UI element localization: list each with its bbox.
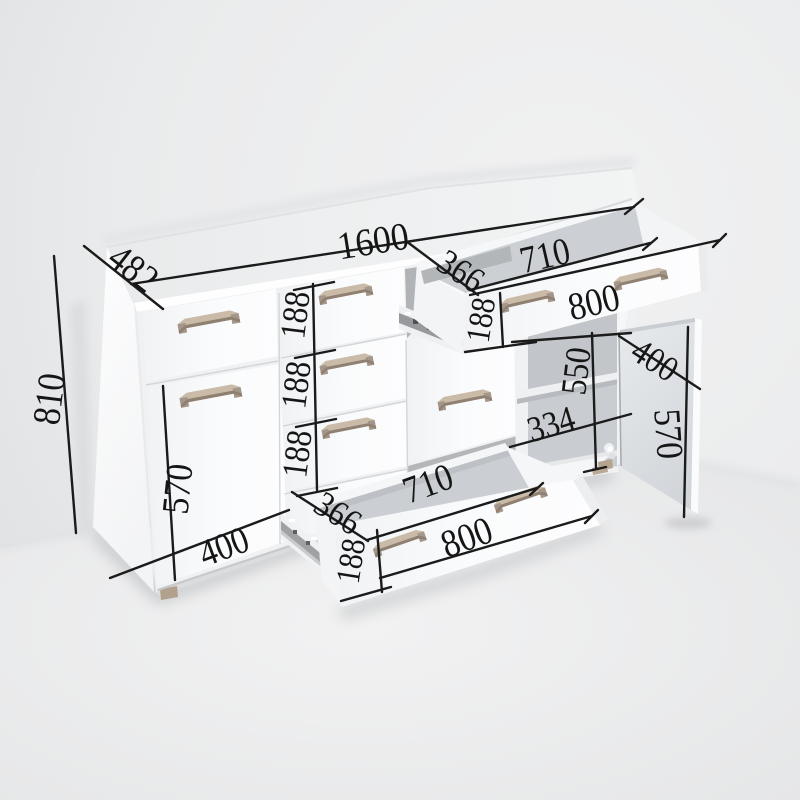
svg-text:188: 188 bbox=[328, 536, 373, 586]
svg-text:188: 188 bbox=[273, 289, 318, 341]
svg-text:550: 550 bbox=[554, 345, 599, 397]
svg-text:570: 570 bbox=[646, 407, 692, 460]
svg-text:188: 188 bbox=[274, 359, 319, 411]
svg-text:188: 188 bbox=[458, 295, 503, 345]
svg-text:188: 188 bbox=[275, 428, 320, 480]
svg-text:570: 570 bbox=[154, 462, 201, 516]
svg-text:810: 810 bbox=[24, 371, 73, 427]
